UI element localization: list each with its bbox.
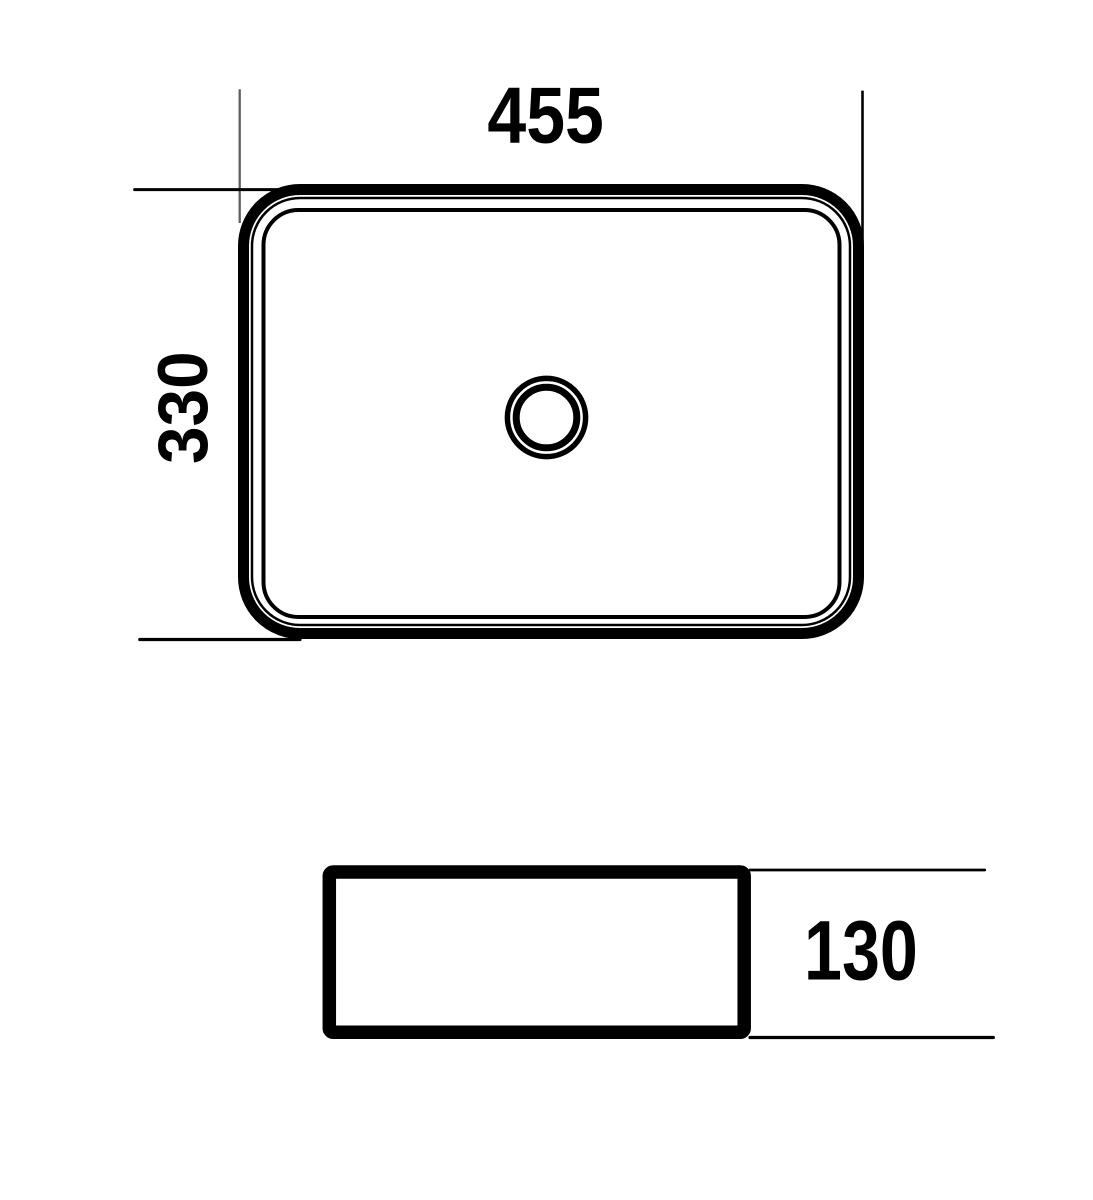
svg-text:455: 455 xyxy=(487,70,604,159)
svg-text:330: 330 xyxy=(143,351,223,464)
svg-text:130: 130 xyxy=(804,904,918,998)
